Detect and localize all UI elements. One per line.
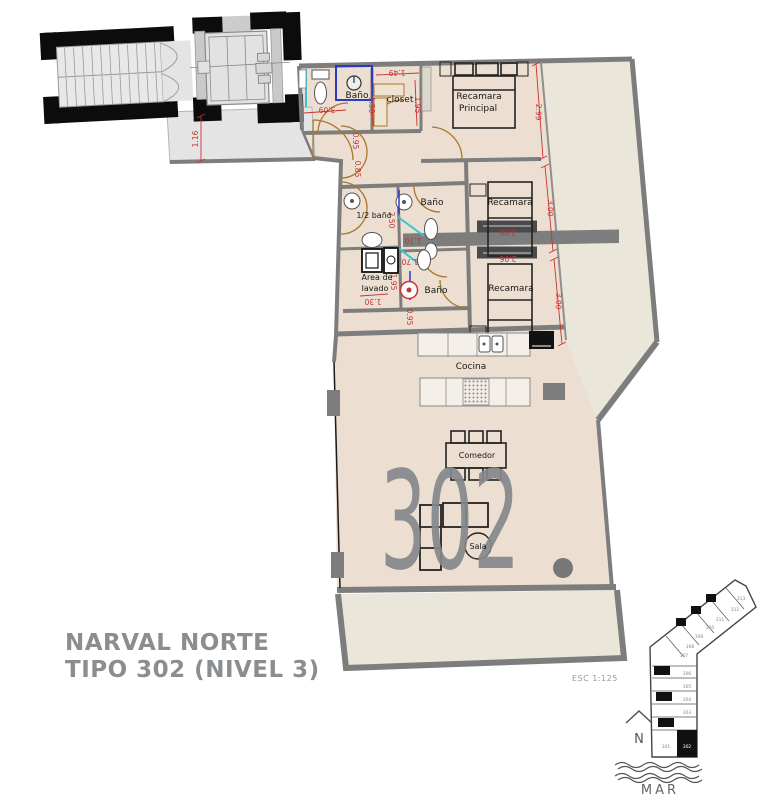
- dim-landing: 1.16: [191, 130, 200, 147]
- floor-plan-page: 1.16 3.09 1.49 1.50 1.95 0.95 0.85 2.99 …: [0, 0, 769, 804]
- dim-closet-bar-1: 2.06: [499, 228, 516, 237]
- label-area-lavado-1: Area de: [362, 273, 393, 282]
- label-recamara-principal-2: Principal: [459, 104, 497, 114]
- label-comedor: Comedor: [459, 451, 496, 460]
- scale-note: ESC 1:125: [572, 674, 618, 683]
- toilet-mid: [425, 219, 438, 240]
- sea-label: MAR: [641, 783, 679, 798]
- label-bano-top: Baño: [346, 91, 369, 101]
- title-line-1: NARVAL NORTE: [65, 630, 269, 656]
- toilet-low: [418, 250, 431, 270]
- dim-bano-low-w: 1.70: [401, 257, 418, 266]
- kp-301: 301: [662, 744, 671, 750]
- toilet-top: [315, 82, 327, 104]
- label-bano-mid: Baño: [421, 198, 444, 208]
- key-plan-unit-302-highlight: [677, 730, 697, 757]
- dim-hall-a: 0.95: [351, 133, 360, 150]
- kp-310: 310: [706, 625, 715, 631]
- kp-309: 309: [695, 634, 704, 640]
- kp-302: 302: [683, 744, 692, 750]
- dim-closet-bar-2: 2.06: [499, 254, 516, 263]
- floor-plan-drawing: 1.16 3.09 1.49 1.50 1.95 0.95 0.85 2.99 …: [0, 0, 769, 804]
- toilet-tank-top: [312, 70, 329, 79]
- kp-312: 312: [731, 607, 740, 613]
- dim-bano-low-h: 0.95: [405, 309, 414, 326]
- dim-closet-w: 1.49: [388, 68, 405, 77]
- kp-307: 307: [680, 653, 689, 659]
- elevator-door-mechanism: [255, 53, 272, 84]
- bottom-terrace-floor: [338, 590, 624, 668]
- kp-311: 311: [716, 617, 725, 623]
- dim-lavado-w: 1.30: [364, 297, 381, 306]
- key-plan: 301 302 303 304 305 306 307 308 309 310 …: [650, 580, 756, 757]
- sea-symbol: MAR: [615, 763, 702, 799]
- dim-recamara-1-h: 3.00: [546, 200, 556, 217]
- toilet-medio-bano: [362, 233, 382, 248]
- cooktop: [463, 379, 489, 405]
- elevator: [188, 11, 304, 126]
- label-recamara-principal-1: Recamara: [456, 92, 501, 102]
- label-cocina: Cocina: [456, 362, 486, 372]
- label-area-lavado-2: lavado: [362, 284, 389, 293]
- dim-foyer-w: 3.09: [318, 105, 335, 114]
- dim-closet-h: 1.95: [413, 97, 422, 114]
- north-label: N: [634, 732, 644, 747]
- kp-305: 305: [683, 684, 692, 690]
- dim-hall-b: 0.85: [353, 161, 362, 178]
- kitchen-counter: [418, 333, 530, 356]
- wave-lines: [615, 763, 702, 783]
- title-line-2: TIPO 302 (NIVEL 3): [65, 657, 320, 683]
- unit-number-watermark: 302: [380, 443, 520, 601]
- label-sala: Sala: [469, 542, 486, 551]
- label-medio-bano: 1/2 baño: [356, 211, 391, 220]
- kp-306: 306: [683, 671, 692, 677]
- column: [553, 558, 573, 578]
- sink-top: [299, 70, 306, 88]
- dim-recamara-2-h: 3.00: [554, 293, 564, 310]
- label-closet: closet: [387, 95, 414, 105]
- wardrobe-principal: [422, 67, 431, 111]
- kp-313: 313: [737, 596, 746, 602]
- label-bano-low: Baño: [425, 286, 448, 296]
- kp-304: 304: [683, 697, 692, 703]
- label-recamara-2: Recamara: [488, 284, 533, 294]
- kp-303: 303: [683, 710, 692, 716]
- dryer: [384, 248, 398, 273]
- dim-bano-mid-w: 1.70: [404, 236, 421, 245]
- kp-308: 308: [686, 644, 695, 650]
- staircase: [40, 25, 195, 124]
- label-recamara-1: Recamara: [487, 198, 532, 208]
- dim-recamara-principal-h: 2.99: [534, 104, 544, 121]
- north-arrow: N: [626, 711, 652, 747]
